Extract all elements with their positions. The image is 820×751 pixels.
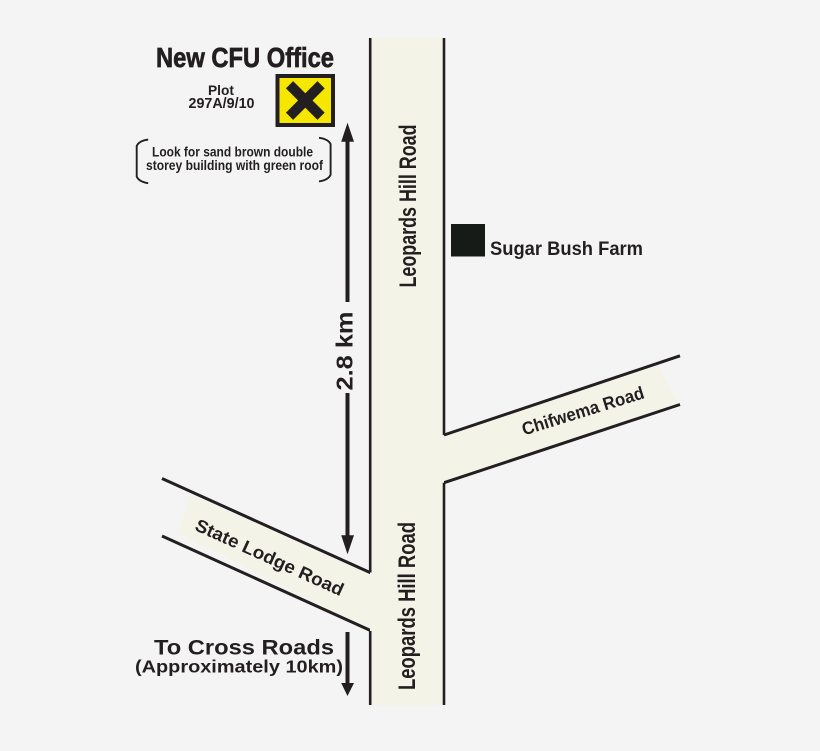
svg-text:Sugar Bush Farm: Sugar Bush Farm xyxy=(490,238,643,260)
svg-text:Leopards Hill Road: Leopards Hill Road xyxy=(395,125,422,288)
svg-text:storey building with green roo: storey building with green roof xyxy=(146,158,323,173)
svg-text:New CFU Office: New CFU Office xyxy=(156,42,334,73)
svg-text:(Approximately 10km): (Approximately 10km) xyxy=(135,656,343,676)
svg-text:Leopards Hill Road: Leopards Hill Road xyxy=(394,522,421,690)
svg-text:2.8 km: 2.8 km xyxy=(332,312,358,391)
svg-text:297A/9/10: 297A/9/10 xyxy=(189,95,255,112)
